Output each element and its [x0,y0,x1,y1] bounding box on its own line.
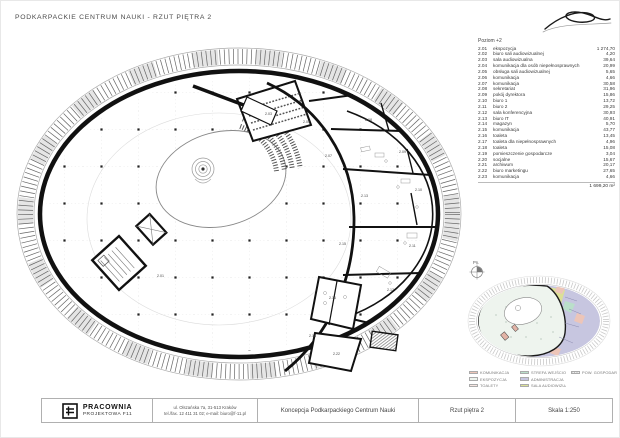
room-number: 2.23 [478,174,493,180]
room-name: komunikacja [493,174,581,180]
room-label: 2.18 [309,334,316,338]
toilet-block [311,277,361,329]
schedule-row: 2.23 komunikacja 4,66 [478,174,615,180]
drawing-name-cell: Rzut piętra 2 [418,399,515,422]
f11-logo-icon [62,403,78,419]
legend-item: POW. GOSPODARCZA [571,370,617,375]
minimap-zones [478,285,600,357]
room-schedule: Poziom +2 2.01 ekspozycja 1 274,70 2.02 … [478,38,615,189]
legend-label: KOMUNIKACJA [480,370,509,375]
key-plan-minimap: Pn. [461,257,619,374]
title-block: PRACOWNIA PROJEKTOWA F11 ul. Olszańska 7… [41,398,613,423]
project-name-cell: Koncepcja Podkarpackiego Centrum Nauki [257,399,418,422]
legend-item: SALA AUDIOWIZUALNA [520,383,566,388]
company-subname: PROJEKTOWA F11 [83,412,132,417]
minimap-legend: KOMUNIKACJA EKSPOZYCJA TOALETY STREFA WE… [469,370,617,388]
sheet-title: PODKARPACKIE CENTRUM NAUKI - RZUT PIĘTRA… [15,14,212,21]
company-name: PRACOWNIA [83,404,132,411]
room-label: 2.11 [409,244,416,248]
company-address-cell: ul. Olszańska 7a, 31-513 Kraków tel./fax… [152,399,257,422]
room-label: 2.09 [399,150,406,154]
legend-label: POW. GOSPODARCZA [582,370,617,375]
legend-item: TOALETY [469,383,515,388]
address-line-2: tel./fax. 12 411 31 02; e-mail: biuro@f-… [164,411,246,416]
scale-cell: Skala 1:250 [515,399,612,422]
svg-text:Pn.: Pn. [473,260,479,265]
room-label: 2.15 [339,242,346,246]
schedule-rows: 2.01 ekspozycja 1 274,70 2.02 biuro sali… [478,46,615,180]
room-area: 4,66 [581,174,615,180]
schedule-total-area: 1 699,20 m² [478,182,615,189]
marketing-office-block [309,331,398,371]
legend-label: ADMINISTRACJA [531,377,564,382]
room-label: 2.01 [157,274,164,278]
legend-item: STREFA WEJŚCIOWA [520,370,566,375]
legend-item: ADMINISTRACJA [520,377,566,382]
legend-swatch [469,384,478,388]
north-compass-icon: Pn. [470,260,485,280]
room-label: 2.08 [365,118,372,122]
room-label: 2.12 [387,288,394,292]
legend-item: EKSPOZYCJA [469,377,515,382]
brand-squiggle-icon [541,7,613,35]
room-label: 2.22 [333,352,340,356]
floor-plan: 2.01 2.03 2.05 2.07 2.08 2.09 2.10 2.11 … [9,37,469,394]
legend-label: STREFA WEJŚCIOWA [531,370,566,375]
room-label: 2.16 [329,296,336,300]
room-label: 2.05 [303,120,310,124]
legend-swatch [571,371,580,375]
company-logo-cell: PRACOWNIA PROJEKTOWA F11 [42,399,152,422]
room-label: 2.13 [361,194,368,198]
schedule-level-header: Poziom +2 [478,38,615,44]
room-label: 2.07 [325,154,332,158]
legend-item: KOMUNIKACJA [469,370,515,375]
legend-swatch [469,377,478,381]
room-label: 2.10 [415,188,422,192]
legend-label: SALA AUDIOWIZUALNA [531,383,566,388]
legend-swatch [469,371,478,375]
legend-label: TOALETY [480,383,498,388]
legend-swatch [520,371,529,375]
legend-label: EKSPOZYCJA [480,377,507,382]
legend-swatch [520,377,529,381]
drawing-sheet: PODKARPACKIE CENTRUM NAUKI - RZUT PIĘTRA… [0,0,620,438]
room-label: 2.03 [265,112,272,116]
legend-swatch [520,384,529,388]
